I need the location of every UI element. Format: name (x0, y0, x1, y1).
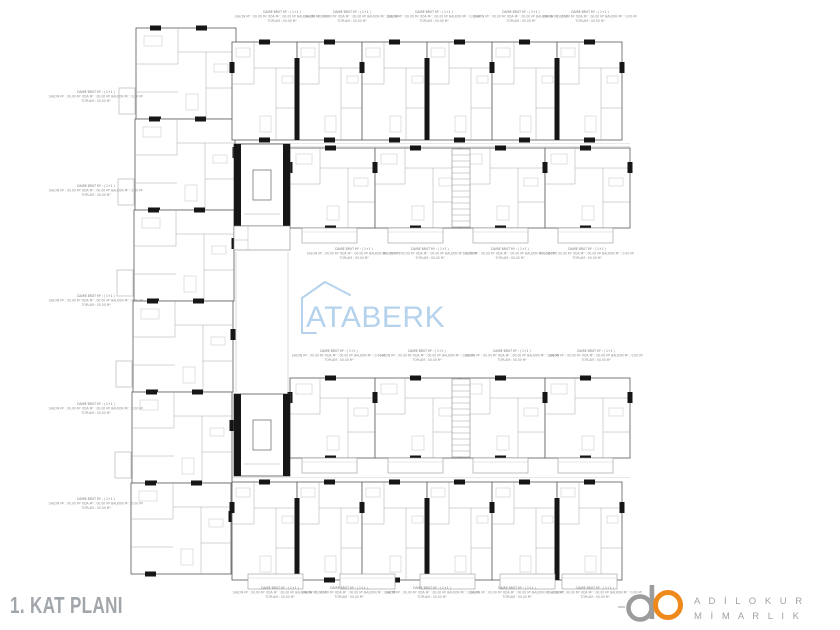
apartment-unit (295, 40, 365, 143)
unit-annotation: DAİRE BRÜT M² : ( 1+1 )SALON M² : 00.00 … (25, 294, 168, 308)
apartment-unit (425, 480, 495, 583)
balcony (473, 228, 528, 243)
apartment-unit (131, 481, 234, 577)
apartment-unit (490, 480, 560, 583)
apartment-unit (543, 146, 633, 231)
logo-a-icon (629, 585, 655, 620)
apartment-unit (555, 480, 625, 583)
apartment-unit (555, 40, 625, 143)
apartment-unit (288, 376, 378, 461)
architect-logo: A D İ L O K U R M İ M A R L I K (618, 578, 836, 630)
staircase (452, 149, 470, 227)
unit-annotation: DAİRE BRÜT M² : ( 1+1 )SALON M² : 00.00 … (25, 184, 168, 198)
unit-row-bottom (230, 480, 625, 590)
unit-row-top (230, 40, 625, 143)
balcony (302, 228, 357, 243)
stair-core-upper (234, 144, 290, 250)
shear-wall (425, 498, 430, 580)
balcony (388, 458, 443, 473)
watermark: ATABERK (302, 282, 445, 334)
unit-row-2 (288, 146, 633, 244)
unit-annotation: DAİRE BRÜT M² : ( 1+1 )SALON M² : 00.00 … (25, 402, 168, 416)
unit-annotation: DAİRE BRÜT M² : ( 1+1 )SALON M² : 00.00 … (525, 349, 668, 363)
shear-wall (555, 58, 560, 140)
balcony (388, 228, 443, 243)
apartment-unit (425, 40, 495, 143)
balcony (473, 458, 528, 473)
shear-wall (295, 498, 300, 580)
shear-wall (295, 58, 300, 140)
unit-annotation: DAİRE BRÜT M² : ( 1+1 )SALON M² : 00.00 … (25, 497, 168, 511)
apartment-unit (373, 376, 463, 461)
apartment-unit (543, 376, 633, 461)
watermark-text: ATABERK (306, 301, 445, 334)
shear-wall (555, 498, 560, 580)
unit-annotation: DAİRE BRÜT M² : ( 1+1 )SALON M² : 00.00 … (516, 247, 659, 261)
staircase (452, 379, 470, 457)
apartment-unit (133, 299, 236, 395)
apartment-unit (373, 146, 463, 231)
floor-plan-sheet: ATABERK DAİRE BRÜT M² : ( 1+1 )SALON M² … (0, 0, 840, 630)
stair-core-lower (234, 394, 290, 476)
balcony (558, 458, 613, 473)
apartment-unit (230, 480, 300, 583)
logo-o-icon (656, 593, 681, 618)
apartment-unit (458, 376, 548, 461)
balcony (302, 458, 357, 473)
apartment-unit (490, 40, 560, 143)
page-title: 1. KAT PLANI (10, 592, 123, 619)
apartment-unit (288, 146, 378, 231)
balcony (558, 228, 613, 243)
apartment-unit (134, 208, 237, 304)
apartment-unit (136, 26, 239, 122)
unit-row-3 (288, 376, 633, 474)
shear-wall (425, 58, 430, 140)
apartment-unit (458, 146, 548, 231)
apartment-unit (230, 40, 300, 143)
unit-annotation: DAİRE BRÜT M² : ( 1+1 )SALON M² : 00.00 … (25, 90, 168, 104)
logo-name-line2: M İ M A R L I K (694, 611, 802, 622)
apartment-unit (295, 480, 365, 583)
apartment-unit (360, 40, 430, 143)
logo-name-line1: A D İ L O K U R (694, 596, 805, 607)
apartment-unit (360, 480, 430, 583)
unit-annotation: DAİRE BRÜT M² : ( 1+1 )SALON M² : 00.00 … (519, 10, 662, 24)
